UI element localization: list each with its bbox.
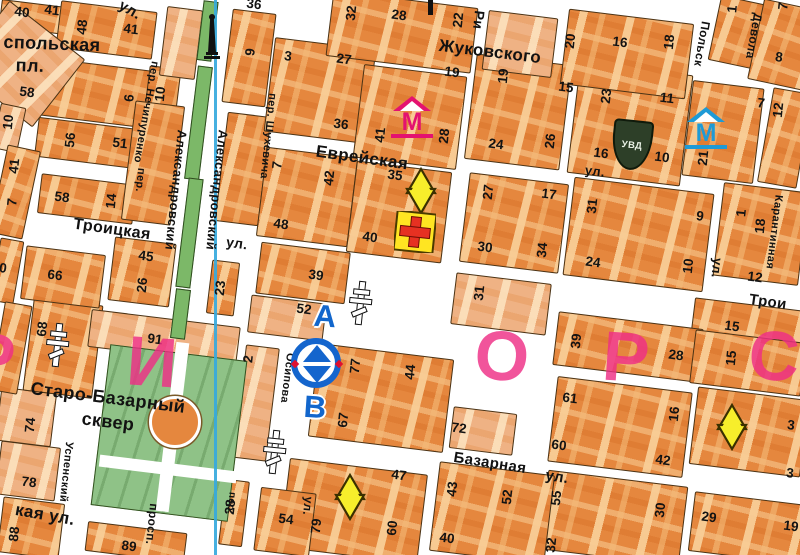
city-map: ул.спольскаяпл.пер. НечипуренкоАлександр… [0,0,800,555]
building-number: 78 [21,474,38,491]
building-number: 60 [384,520,400,537]
building-number: 18 [752,218,768,235]
city-block [560,9,694,100]
route-marker-a-b [288,335,346,393]
building-number: 31 [584,198,600,215]
building-number: 60 [551,437,568,454]
synagogue-star-icon [709,403,755,451]
metro-letter: М [684,122,728,145]
map-symbol-fragment [428,0,433,15]
cross-bar [50,330,68,338]
building-number: 32 [343,5,359,22]
building-number: 19 [783,518,800,535]
building-number: 19 [495,68,511,85]
building-number: 41 [372,127,388,144]
building-number: 44 [402,364,418,381]
building-number: 20 [562,33,578,50]
district-name-letter: С [746,319,800,392]
building-number: 31 [471,285,487,302]
building-number: 27 [336,51,353,68]
building-number: 42 [655,452,672,469]
building-number: 66 [47,267,64,284]
street-label: Ри [470,10,488,30]
building-number: 55 [548,490,564,507]
building-number: 45 [138,248,155,265]
building-number: 23 [598,88,614,105]
building-number: 61 [562,390,579,407]
building-number: 2 [240,354,256,363]
building-number: 1 [733,208,749,217]
building-number: 77 [347,358,363,375]
building-number: 12 [747,269,764,286]
building-number: 3 [785,465,794,481]
building-number: 7 [269,160,285,169]
marker-letter-b: В [303,391,327,423]
church-cross-icon [345,279,376,327]
building-number: 29 [701,509,718,526]
building-number: 11 [659,90,675,107]
building-number: 26 [134,277,150,294]
church-cross-icon [259,428,290,476]
building-number: 7 [756,95,765,111]
building-number: 14 [103,193,119,210]
street-label: спольская [3,32,101,56]
building-number: 58 [54,189,71,206]
city-block [20,245,106,308]
synagogue-star-icon [327,473,373,521]
building-number: 30 [477,239,494,256]
cross-bar [353,288,371,296]
building-number: 41 [6,158,22,175]
building-number: 36 [246,0,263,12]
street-label: пер. [224,491,237,514]
building-number: 15 [723,350,739,367]
building-number: 16 [593,145,610,162]
building-number: 19 [444,64,461,81]
marker-letter-a: А [313,300,337,332]
building-number: 72 [451,420,468,437]
street-label: пер. [133,167,147,192]
tram-route-line [214,0,217,555]
district-name-letter: О [472,319,531,393]
metro-station-icon: М [684,107,728,149]
building-number: 52 [296,301,313,318]
building-number: 48 [273,216,290,233]
monument-icon [203,14,221,62]
building-number: 9 [242,47,258,56]
building-number: 15 [558,79,575,96]
building-number: 24 [585,254,602,271]
building-number: 21 [695,150,711,167]
cross-bar [46,339,70,347]
metro-roof-icon [393,96,431,111]
street-label: ул. [225,234,249,253]
building-number: 79 [308,518,324,535]
building-number: 16 [666,406,682,423]
building-number: 3 [786,417,795,433]
building-number: 67 [335,412,351,429]
building-number: 15 [724,318,741,335]
building-number: 3 [283,48,292,64]
building-number: 28 [391,7,408,24]
building-number: 74 [22,417,38,434]
building-number: 7 [4,197,20,206]
building-number: 52 [499,489,515,506]
city-block [255,242,351,305]
building-number: 43 [444,481,460,498]
metro-roof-icon [687,107,725,122]
building-number: 10 [0,114,16,131]
building-number: 39 [308,267,325,284]
building-number: 32 [543,537,559,554]
building-number: 48 [74,19,90,36]
cross-bar [349,297,373,305]
city-block [0,441,61,502]
building-number: 89 [121,538,138,555]
boulevard-median [184,66,213,181]
street-label: пл. [15,55,44,77]
building-number: 88 [6,526,22,543]
building-number: 7 [775,1,791,10]
street-label: ул. [544,467,569,487]
district-name-letter: И [124,325,179,398]
building-number: 16 [612,34,629,51]
building-number: 26 [542,133,558,150]
building-number: 47 [391,467,408,484]
building-number: 40 [14,4,31,21]
building-number: 28 [436,128,452,145]
church-cross-icon [42,321,73,369]
building-number: 28 [668,347,685,364]
marker-triangle-up [303,345,331,362]
building-number: 41 [44,2,61,19]
hospital-red-cross-icon [394,211,436,253]
street-label: Польск [691,20,713,67]
building-number: 18 [661,34,677,51]
building-number: 23 [212,280,228,297]
building-number: 54 [278,511,295,528]
monument-base [204,56,220,60]
cross-bar [263,446,287,454]
district-name-letter: Р [600,320,651,393]
street-label: ул. [708,257,725,279]
building-number: 41 [123,21,140,38]
building-number: 58 [19,84,36,101]
building-number: 12 [770,102,786,119]
metro-station-icon: М [390,96,434,138]
synagogue-star-icon [398,167,444,215]
building-number: 51 [112,135,129,152]
building-number: 56 [62,132,78,149]
city-block [562,176,714,291]
building-number: 17 [541,186,558,203]
building-number: 36 [333,116,350,133]
building-number: 30 [652,502,668,519]
building-number: 22 [450,12,466,29]
marker-triangle-down [303,366,331,383]
building-number: 27 [480,184,496,201]
metro-letter: М [390,111,434,134]
building-number: 34 [534,242,550,259]
building-number: 24 [488,136,505,153]
building-number: 42 [321,170,337,187]
cross-bar [267,437,285,445]
building-number: 8 [774,49,783,65]
building-number: 40 [362,229,379,246]
building-number: 6 [121,93,137,102]
building-number: 1 [724,4,740,13]
building-number: 39 [568,333,584,350]
building-number: 10 [680,258,696,275]
building-number: 10 [654,149,671,166]
street-label: ул. [584,162,606,179]
monument-column [203,18,221,52]
building-number: 40 [439,530,456,547]
street-label: ул. [300,496,316,516]
